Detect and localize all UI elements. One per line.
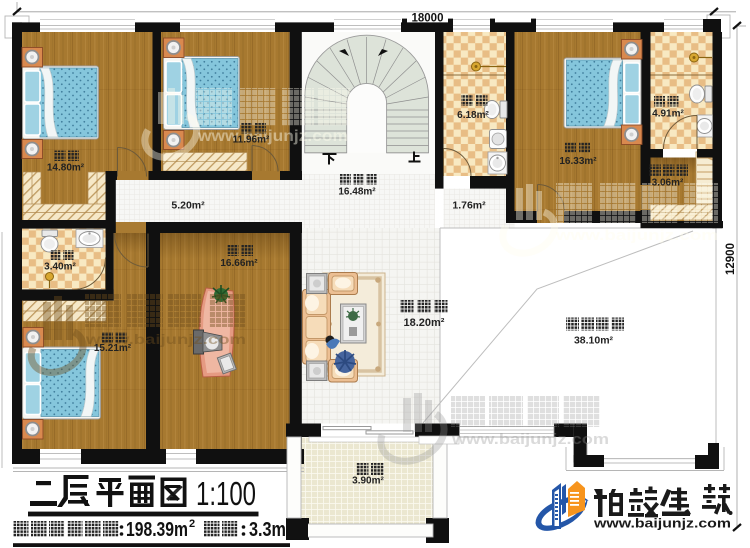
svg-text:www.baijunjz.com: www.baijunjz.com [451, 432, 609, 448]
svg-text:11.96m²: 11.96m² [233, 135, 270, 146]
svg-text:3.06m²: 3.06m² [652, 178, 684, 189]
svg-text:12900: 12900 [725, 243, 737, 275]
svg-text:www.baijunjz.com: www.baijunjz.com [593, 516, 731, 531]
svg-text:4.91m²: 4.91m² [652, 109, 684, 120]
svg-text:1.76m²: 1.76m² [452, 200, 486, 212]
svg-text:16.33m²: 16.33m² [559, 156, 597, 167]
svg-text:15.21m²: 15.21m² [94, 343, 132, 354]
svg-text:18.20m²: 18.20m² [404, 317, 445, 329]
svg-text:16.48m²: 16.48m² [338, 187, 376, 198]
svg-text:18000: 18000 [412, 13, 444, 25]
svg-text:16.66m²: 16.66m² [220, 258, 258, 269]
svg-text:198.39m: 198.39m [126, 519, 188, 541]
svg-text:3.40m²: 3.40m² [44, 262, 76, 273]
svg-text:3.90m²: 3.90m² [352, 476, 384, 487]
svg-text:14.80m²: 14.80m² [47, 163, 85, 174]
svg-text:2: 2 [189, 518, 195, 530]
svg-text:6.18m²: 6.18m² [457, 110, 489, 121]
svg-text:38.10m²: 38.10m² [574, 335, 614, 347]
svg-text:5.20m²: 5.20m² [171, 200, 205, 212]
svg-text:www.baijunjz.com: www.baijunjz.com [197, 128, 348, 145]
svg-text:3.3m: 3.3m [249, 519, 286, 541]
svg-text:1:100: 1:100 [196, 475, 256, 512]
svg-text:www.baijunjz.com: www.baijunjz.com [555, 227, 718, 244]
